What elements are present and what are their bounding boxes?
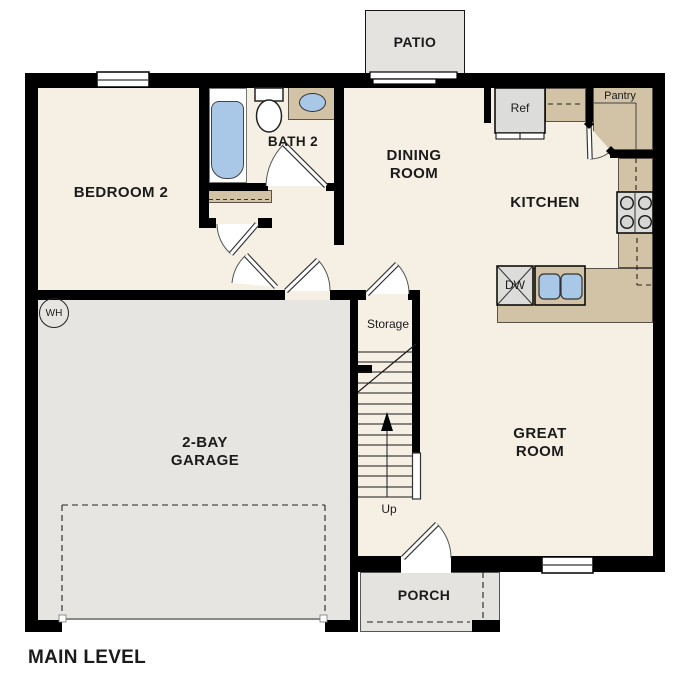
garage-label-line2: GARAGE <box>171 452 239 470</box>
garage-door-corner-left <box>59 615 66 622</box>
garage-label: 2-BAY GARAGE <box>171 434 239 470</box>
pantry-label: Pantry <box>604 90 636 102</box>
dining-room-label: DINING ROOM <box>387 147 442 183</box>
garage-entry-door <box>286 260 330 300</box>
storage-door <box>367 264 409 302</box>
stair-handrail <box>413 453 421 499</box>
patio-label: PATIO <box>394 33 437 51</box>
kitchen-sink-icon <box>535 266 585 305</box>
great-room-label-line1: GREAT <box>513 425 566 443</box>
porch-label: PORCH <box>398 586 451 604</box>
bedroom2-window <box>97 72 149 87</box>
closet-door <box>217 224 257 254</box>
kitchen-label: KITCHEN <box>510 194 579 212</box>
toilet-icon <box>255 88 283 132</box>
pantry-door-jamb-top <box>584 119 594 129</box>
stairs-up-label: Up <box>381 503 396 516</box>
bedroom2-label: BEDROOM 2 <box>74 184 168 202</box>
garage-door-tracks <box>62 505 325 618</box>
patio-sliding-door <box>370 72 457 84</box>
stair-up-arrow-icon <box>381 412 393 431</box>
pantry-door <box>584 119 616 159</box>
great-room-label-line2: ROOM <box>513 443 566 461</box>
bath2-label: BATH 2 <box>268 133 318 151</box>
front-door <box>401 524 451 573</box>
greatroom-window <box>542 557 593 573</box>
storage-label: Storage <box>367 318 409 331</box>
dishwasher-label: DW <box>505 279 525 292</box>
great-room-label: GREAT ROOM <box>513 425 566 461</box>
dining-room-label-line2: ROOM <box>387 165 442 183</box>
floorplan-linework <box>0 0 687 687</box>
stair-break-line <box>358 344 416 392</box>
garage-door-corner-right <box>320 615 327 622</box>
dining-room-label-line1: DINING <box>387 147 442 165</box>
water-heater-label: WH <box>46 308 63 319</box>
stove-icon <box>617 192 653 233</box>
garage-label-line1: 2-BAY <box>171 434 239 452</box>
water-heater-icon: WH <box>39 298 69 328</box>
floorplan-main-level: PATIO BEDROOM 2 BATH 2 DINING ROOM KITCH… <box>0 0 687 687</box>
level-title: MAIN LEVEL <box>28 647 146 669</box>
bedroom2-door <box>232 255 276 287</box>
refrigerator-label: Ref <box>511 102 530 115</box>
